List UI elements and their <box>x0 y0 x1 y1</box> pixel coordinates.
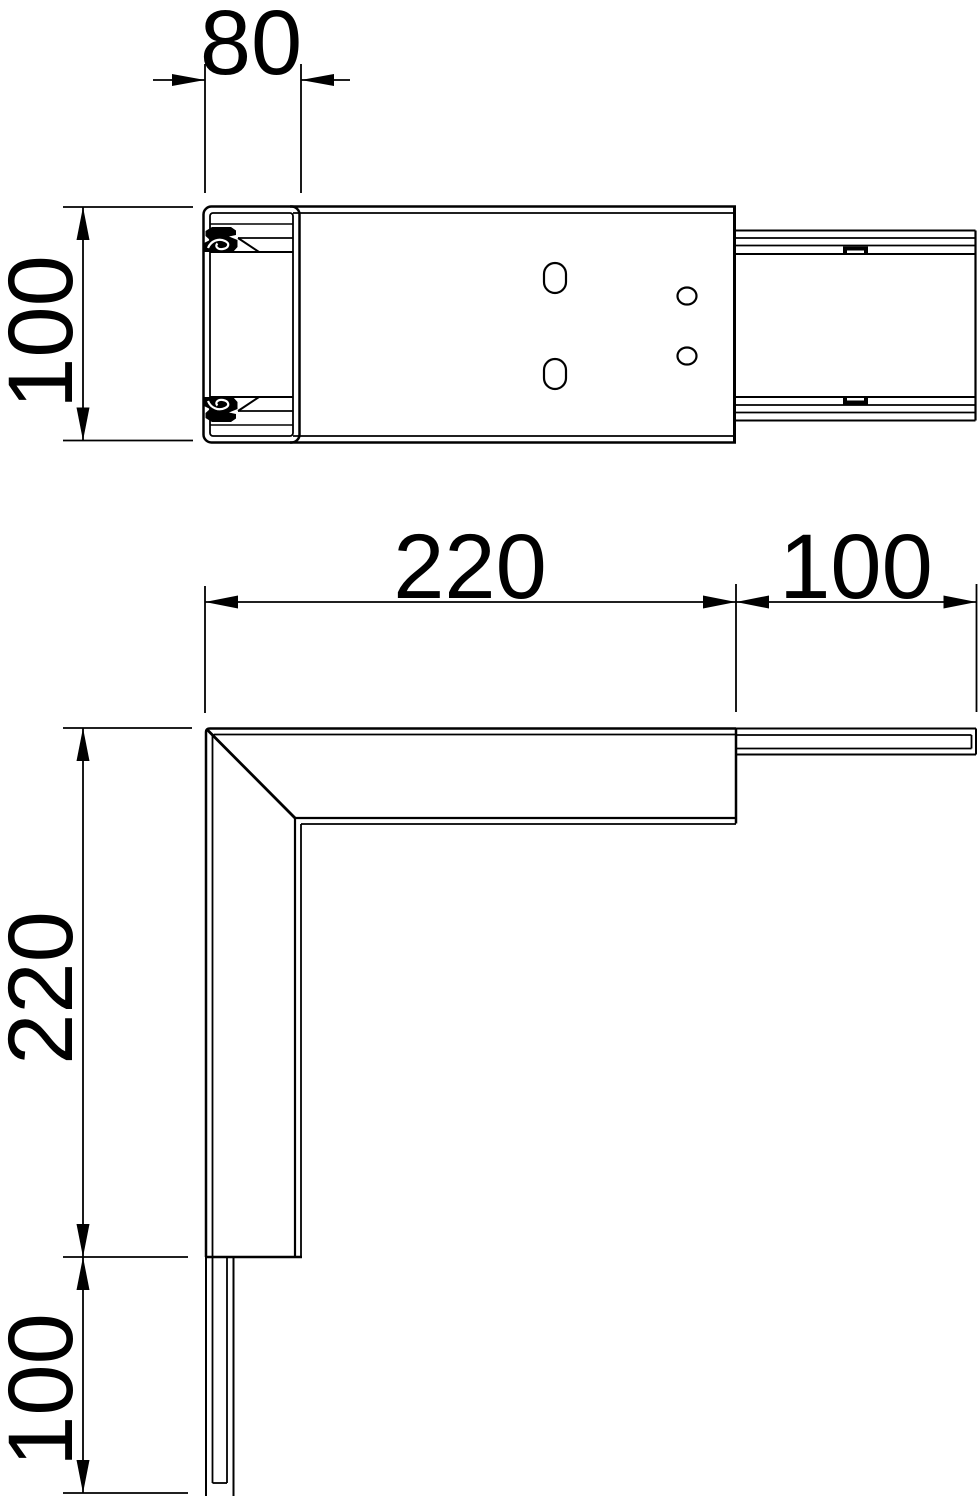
technical-drawing-page: 80 100 <box>0 0 978 1500</box>
dim-label-plan-horizontal-duct: 100 <box>779 516 933 618</box>
dim-label-plan-vertical-duct: 100 <box>0 1313 92 1467</box>
dim-label-front-height: 100 <box>0 255 92 409</box>
dim-label-front-width: 80 <box>200 0 302 94</box>
dim-label-plan-vertical-leg: 220 <box>0 911 92 1065</box>
drawing-background <box>0 0 978 1500</box>
dim-label-plan-horizontal-leg: 220 <box>393 516 547 618</box>
technical-drawing-canvas: 80 100 <box>0 0 978 1500</box>
